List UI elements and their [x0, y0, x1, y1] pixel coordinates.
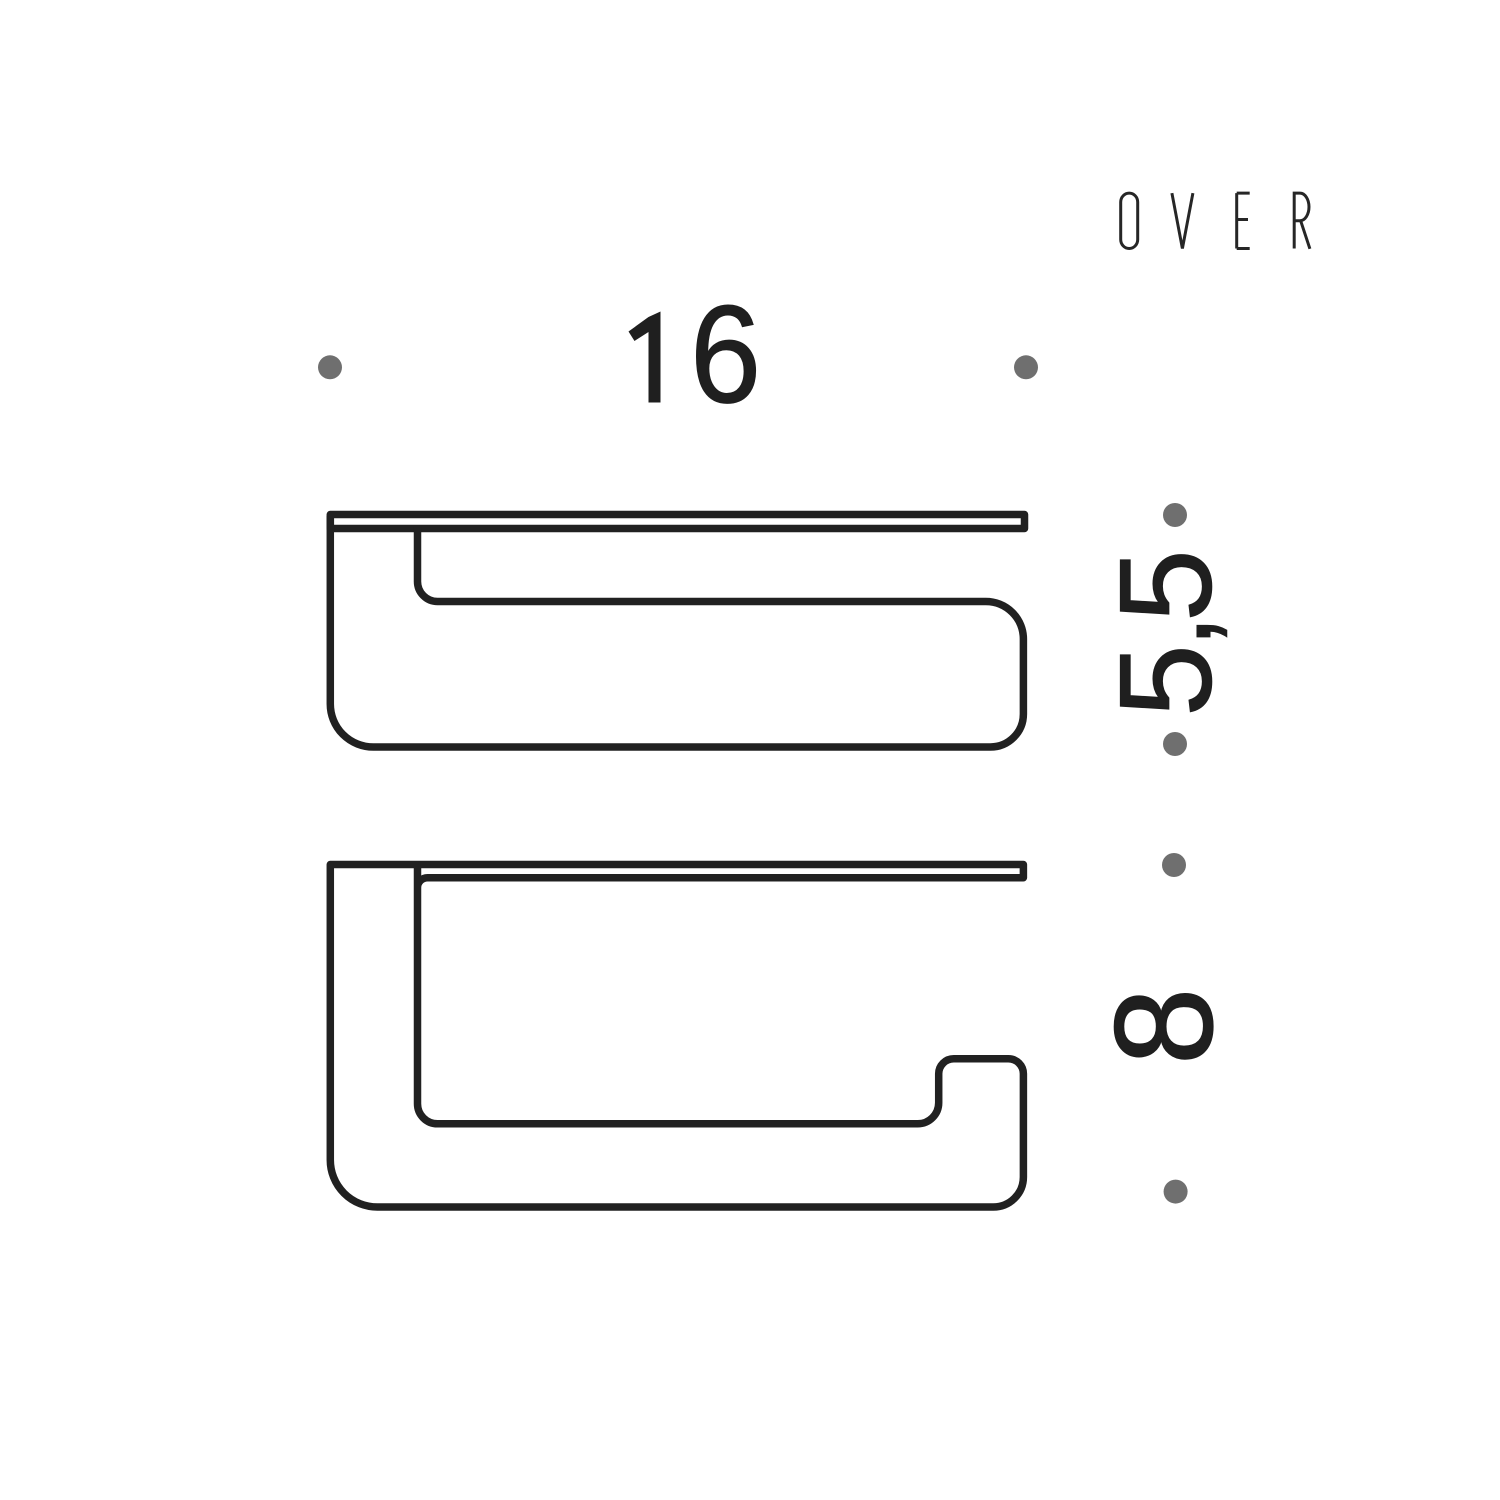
svg-text:6: 6 — [690, 277, 761, 432]
svg-text:5: 5 — [1092, 549, 1239, 622]
svg-text:5: 5 — [1092, 644, 1239, 717]
svg-text:8: 8 — [1087, 988, 1242, 1065]
